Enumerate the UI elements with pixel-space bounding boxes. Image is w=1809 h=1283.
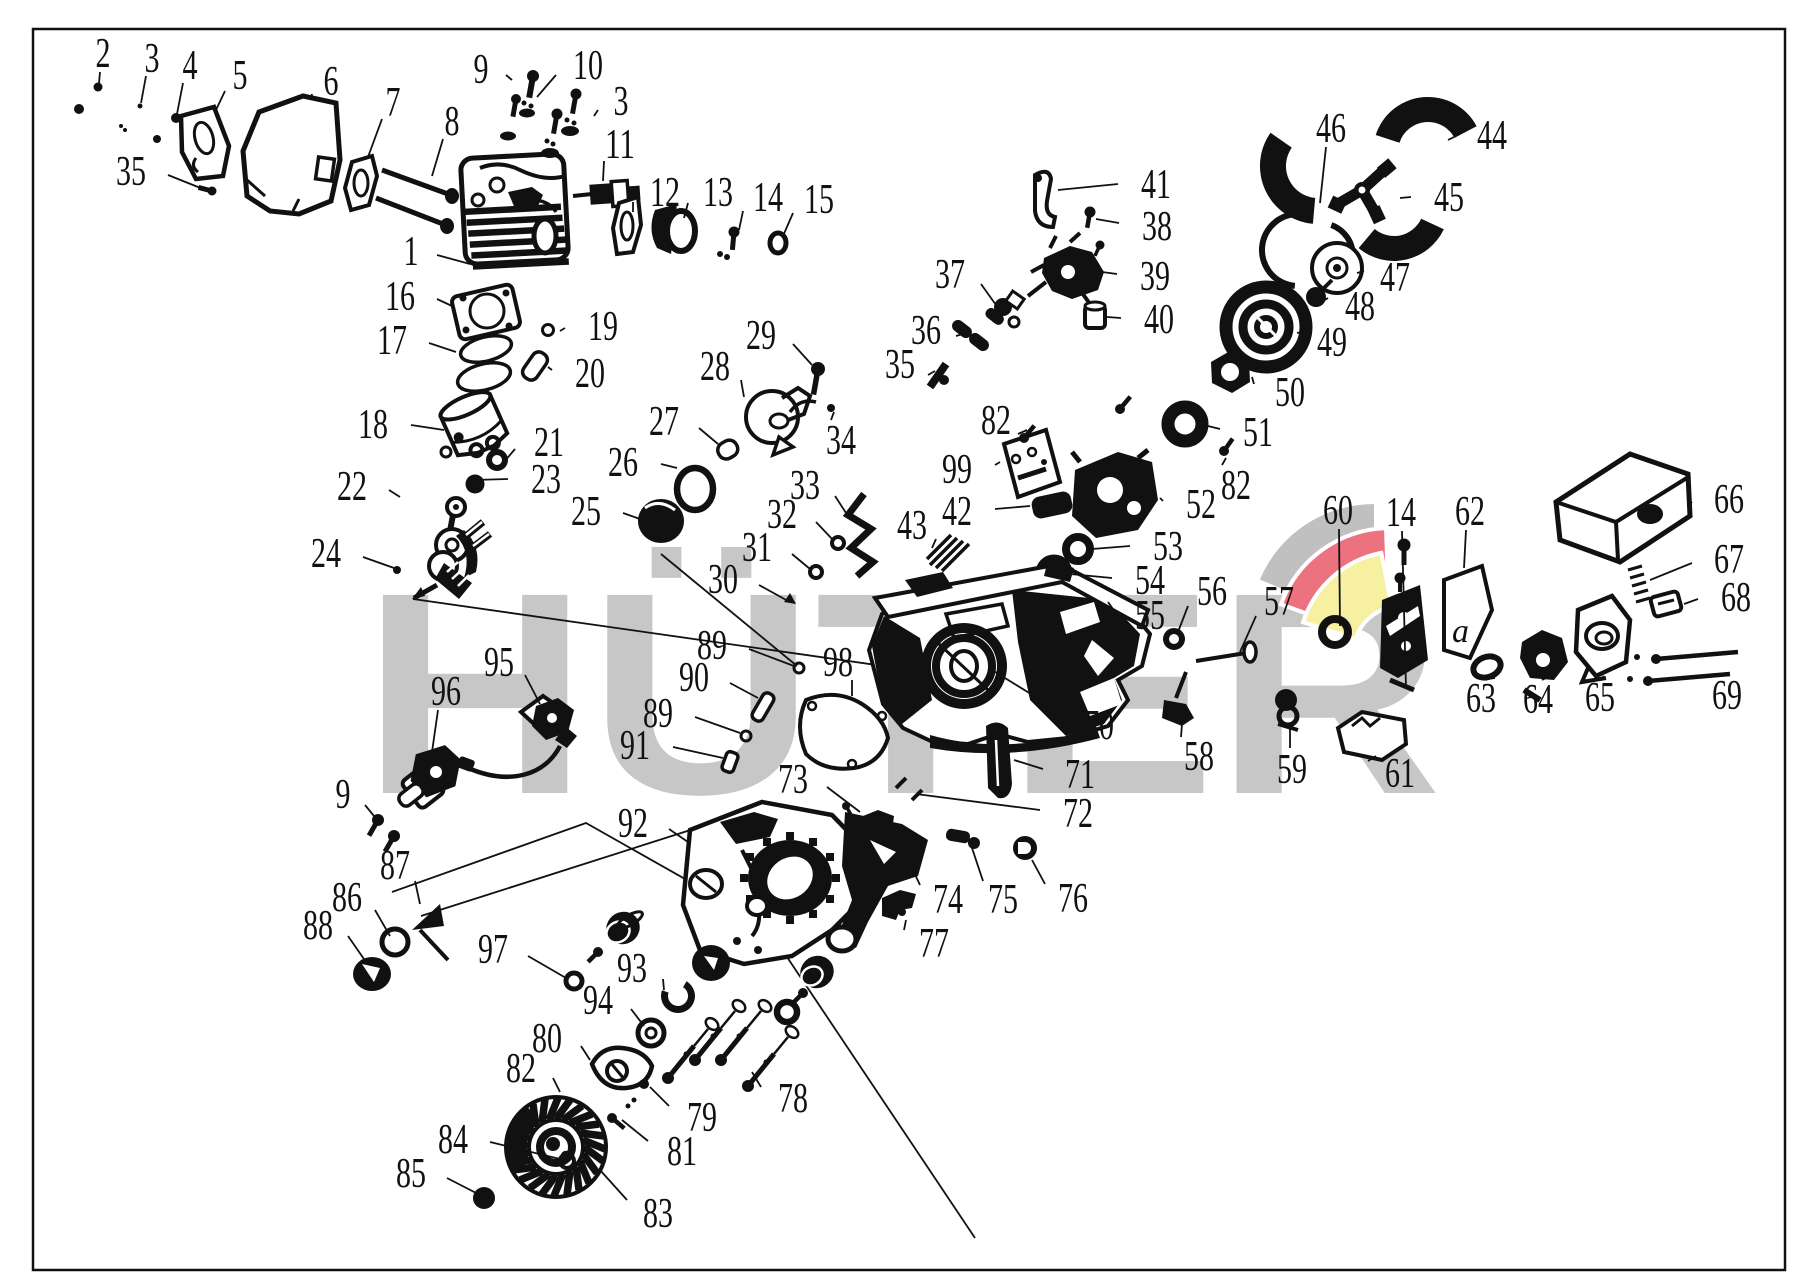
svg-text:8: 8 [445,99,460,145]
svg-text:31: 31 [742,525,772,571]
svg-text:39: 39 [1140,254,1170,300]
svg-text:1: 1 [404,229,419,275]
svg-text:24: 24 [311,531,341,577]
svg-text:85: 85 [396,1151,426,1197]
svg-text:81: 81 [667,1129,697,1175]
svg-text:5: 5 [233,53,248,99]
svg-text:12: 12 [650,170,680,216]
svg-text:90: 90 [679,655,709,701]
svg-text:48: 48 [1345,284,1375,330]
svg-text:14: 14 [1386,490,1416,536]
svg-text:28: 28 [700,344,730,390]
svg-text:34: 34 [826,418,856,464]
svg-text:74: 74 [933,877,963,923]
svg-text:94: 94 [583,978,613,1024]
svg-text:9: 9 [336,772,351,818]
svg-text:78: 78 [778,1076,808,1122]
svg-text:20: 20 [575,351,605,397]
svg-text:82: 82 [981,398,1011,444]
svg-text:7: 7 [386,80,401,126]
svg-text:87: 87 [380,843,410,889]
svg-text:95: 95 [484,640,514,686]
svg-text:60: 60 [1323,488,1353,534]
svg-text:14: 14 [753,175,783,221]
svg-text:57: 57 [1264,579,1294,625]
svg-text:16: 16 [385,274,415,320]
svg-text:6: 6 [324,59,339,105]
svg-text:58: 58 [1184,734,1214,780]
svg-text:82: 82 [506,1046,536,1092]
svg-text:83: 83 [643,1191,673,1237]
svg-text:30: 30 [708,557,738,603]
svg-text:9: 9 [474,47,489,93]
svg-text:36: 36 [911,308,941,354]
svg-text:51: 51 [1243,410,1273,456]
svg-text:66: 66 [1714,477,1744,523]
svg-text:a: a [1452,613,1469,650]
svg-text:23: 23 [531,457,561,503]
svg-text:77: 77 [919,921,949,967]
svg-text:38: 38 [1142,204,1172,250]
svg-text:52: 52 [1186,482,1216,528]
svg-text:56: 56 [1197,569,1227,615]
svg-text:4: 4 [183,43,198,89]
svg-text:75: 75 [988,877,1018,923]
svg-text:63: 63 [1466,676,1496,722]
svg-text:98: 98 [823,640,853,686]
svg-text:61: 61 [1385,751,1415,797]
svg-text:92: 92 [618,801,648,847]
svg-text:55: 55 [1135,593,1165,639]
svg-text:19: 19 [588,304,618,350]
svg-text:45: 45 [1434,175,1464,221]
svg-text:35: 35 [116,149,146,195]
svg-text:15: 15 [804,177,834,223]
svg-text:22: 22 [337,464,367,510]
svg-text:93: 93 [617,946,647,992]
svg-text:2: 2 [96,31,111,77]
svg-text:70: 70 [1084,703,1114,749]
svg-text:80: 80 [532,1016,562,1062]
svg-text:41: 41 [1141,162,1171,208]
svg-text:43: 43 [897,503,927,549]
svg-text:82: 82 [1221,463,1251,509]
svg-text:18: 18 [358,402,388,448]
svg-text:68: 68 [1721,575,1751,621]
svg-text:73: 73 [778,757,808,803]
svg-text:59: 59 [1277,747,1307,793]
svg-text:86: 86 [332,875,362,921]
svg-text:49: 49 [1317,320,1347,366]
svg-text:47: 47 [1380,255,1410,301]
svg-text:46: 46 [1316,106,1346,152]
svg-text:35: 35 [885,342,915,388]
svg-text:13: 13 [703,170,733,216]
svg-text:3: 3 [145,36,160,82]
svg-text:17: 17 [377,318,407,364]
svg-text:25: 25 [571,489,601,535]
svg-text:42: 42 [942,489,972,535]
svg-text:96: 96 [431,669,461,715]
svg-text:69: 69 [1712,673,1742,719]
svg-text:50: 50 [1275,370,1305,416]
svg-text:26: 26 [608,440,638,486]
svg-text:84: 84 [438,1117,468,1163]
svg-text:10: 10 [573,43,603,89]
svg-text:27: 27 [649,399,679,445]
svg-text:97: 97 [478,927,508,973]
svg-text:3: 3 [614,79,629,125]
svg-text:76: 76 [1058,876,1088,922]
svg-text:65: 65 [1585,675,1615,721]
svg-text:91: 91 [620,723,650,769]
svg-text:40: 40 [1144,297,1174,343]
svg-text:88: 88 [303,903,333,949]
svg-text:62: 62 [1455,489,1485,535]
svg-text:11: 11 [605,122,635,168]
svg-text:99: 99 [942,447,972,493]
svg-text:29: 29 [746,313,776,359]
svg-text:44: 44 [1477,113,1507,159]
svg-text:37: 37 [935,252,965,298]
svg-text:64: 64 [1523,677,1553,723]
svg-text:72: 72 [1063,791,1093,837]
